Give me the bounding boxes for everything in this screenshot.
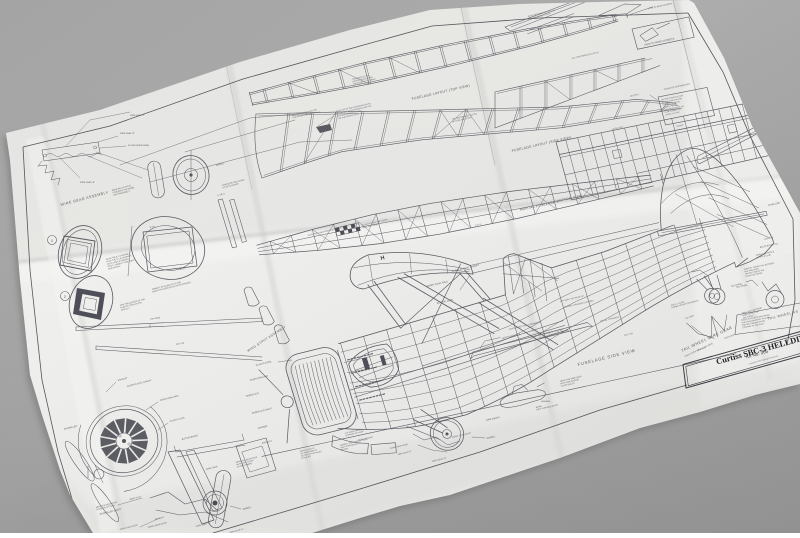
svg-text:WIRE GEAR "B": WIRE GEAR "B"	[120, 132, 135, 135]
svg-text:ROLLER SKATE WHEEL: ROLLER SKATE WHEEL	[128, 144, 149, 147]
svg-text:WIRE GEAR "C": WIRE GEAR "C"	[130, 114, 145, 117]
svg-text:WIRE GEAR "A": WIRE GEAR "A"	[80, 181, 95, 184]
